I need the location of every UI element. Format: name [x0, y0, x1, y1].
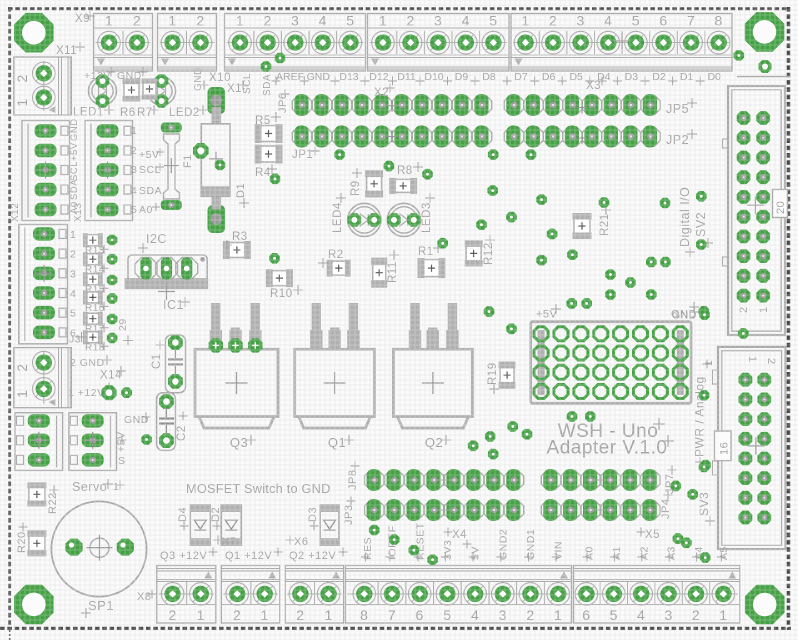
svg-text:D9: D9 — [455, 71, 469, 83]
svg-text:Q1: Q1 — [328, 435, 346, 450]
svg-text:R6: R6 — [120, 107, 136, 119]
svg-text:R19: R19 — [487, 362, 499, 385]
svg-text:SCL: SCL — [242, 73, 253, 94]
svg-text:X7: X7 — [222, 536, 236, 548]
svg-text:D1: D1 — [680, 71, 694, 83]
svg-text:D10: D10 — [424, 71, 443, 83]
svg-text:A1: A1 — [611, 546, 623, 560]
svg-text:X6: X6 — [294, 536, 308, 548]
svg-text:LED1: LED1 — [73, 107, 104, 119]
svg-text:1: 1 — [14, 390, 30, 398]
svg-text:D3: D3 — [625, 71, 639, 83]
svg-text:D12: D12 — [369, 71, 388, 83]
svg-text:I2C: I2C — [146, 232, 167, 246]
svg-text:D13: D13 — [339, 71, 358, 83]
svg-text:1: 1 — [746, 356, 758, 363]
svg-text:A3: A3 — [666, 546, 678, 560]
svg-text:D2: D2 — [652, 71, 666, 83]
svg-text:LED3: LED3 — [421, 202, 433, 233]
svg-text:X2: X2 — [374, 87, 389, 99]
svg-text:C1: C1 — [151, 353, 163, 369]
svg-text:D6: D6 — [542, 71, 556, 83]
svg-text:1 +12V: 1 +12V — [68, 387, 105, 399]
svg-text:SV2: SV2 — [694, 212, 708, 237]
svg-text:D8: D8 — [482, 71, 496, 83]
svg-text:C2: C2 — [176, 425, 188, 441]
svg-text:JP5: JP5 — [666, 102, 689, 116]
svg-text:D5: D5 — [569, 71, 583, 83]
svg-text:X8: X8 — [137, 591, 151, 603]
svg-text:1: 1 — [113, 481, 119, 493]
svg-text:F1: F1 — [182, 154, 194, 168]
svg-text:LED4: LED4 — [332, 202, 344, 233]
svg-text:MOSFET Switch to GND: MOSFET Switch to GND — [186, 481, 331, 496]
svg-text:D7: D7 — [514, 71, 528, 83]
svg-text:R22: R22 — [47, 492, 59, 514]
